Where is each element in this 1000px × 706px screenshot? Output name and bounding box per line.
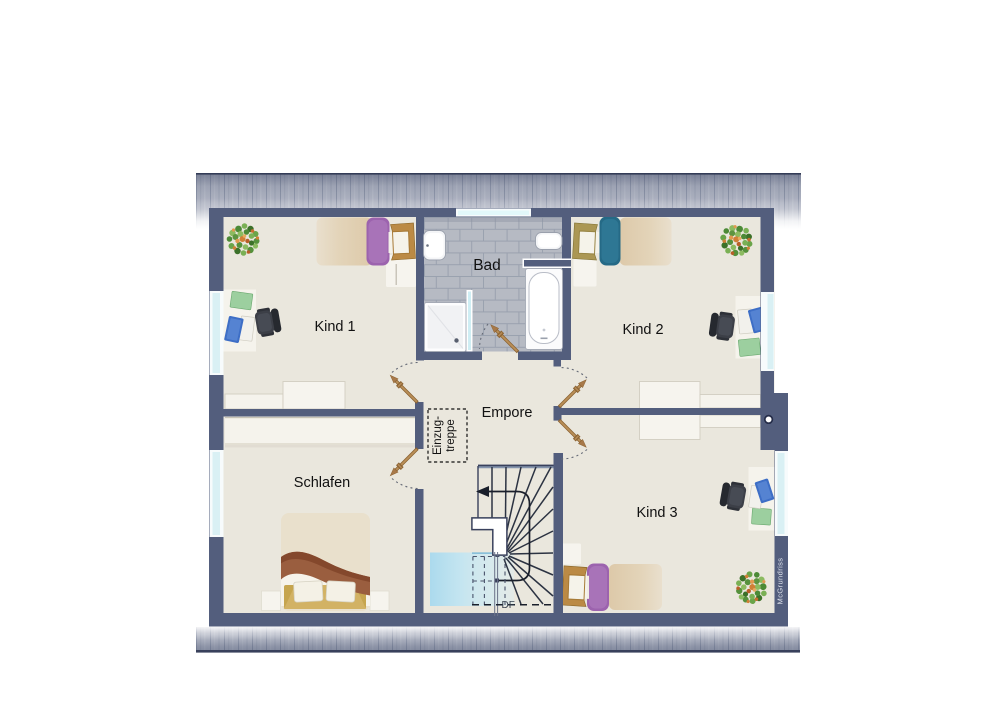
svg-text:McGrundriss: McGrundriss (776, 558, 785, 605)
svg-text:Kind 2: Kind 2 (622, 322, 663, 338)
svg-text:Bad: Bad (473, 257, 501, 274)
svg-text:Einzug-: Einzug- (432, 416, 444, 455)
svg-text:Kind 1: Kind 1 (314, 319, 355, 335)
svg-text:treppe: treppe (445, 419, 457, 452)
svg-text:Empore: Empore (482, 405, 533, 421)
svg-text:Schlafen: Schlafen (294, 475, 350, 491)
svg-text:Kind 3: Kind 3 (636, 505, 677, 521)
svg-text:DF: DF (502, 600, 515, 611)
